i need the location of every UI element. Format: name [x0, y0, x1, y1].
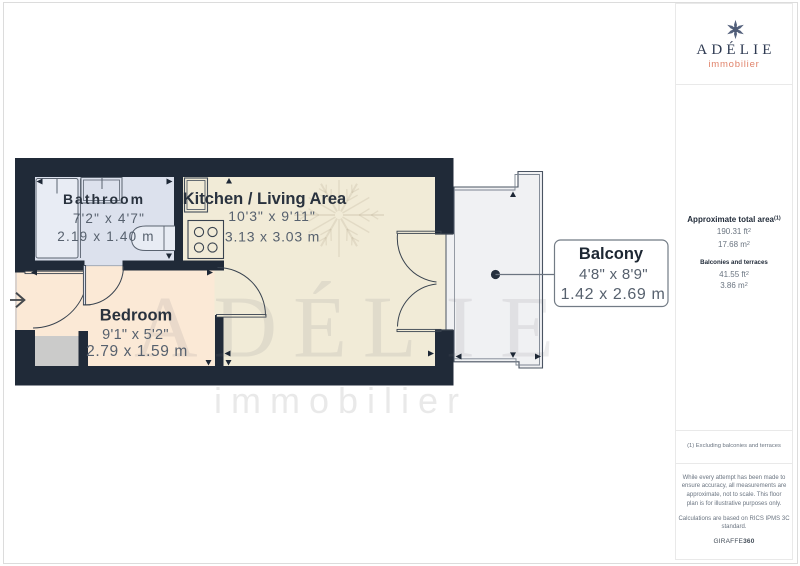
svg-text:9'1" x 5'2": 9'1" x 5'2"	[102, 327, 169, 343]
svg-text:3.13 x 3.03 m: 3.13 x 3.03 m	[225, 229, 320, 245]
svg-text:1.42 x 2.69 m: 1.42 x 2.69 m	[561, 286, 666, 303]
svg-text:2.19 x 1.40 m: 2.19 x 1.40 m	[57, 229, 154, 244]
svg-text:Kitchen / Living Area: Kitchen / Living Area	[183, 190, 347, 208]
svg-text:Bathroom: Bathroom	[63, 191, 145, 207]
svg-text:4'8" x 8'9": 4'8" x 8'9"	[579, 266, 648, 283]
svg-text:Balcony: Balcony	[579, 245, 644, 263]
svg-text:Bedroom: Bedroom	[100, 306, 172, 324]
svg-text:immobilier: immobilier	[214, 380, 468, 421]
svg-text:2.79 x 1.59 m: 2.79 x 1.59 m	[86, 343, 188, 360]
svg-text:10'3" x 9'11": 10'3" x 9'11"	[228, 208, 315, 224]
svg-text:7'2" x 4'7": 7'2" x 4'7"	[73, 211, 145, 226]
svg-text:I: I	[446, 280, 475, 377]
svg-text:ADÉL: ADÉL	[134, 280, 433, 377]
svg-text:E: E	[500, 280, 554, 377]
